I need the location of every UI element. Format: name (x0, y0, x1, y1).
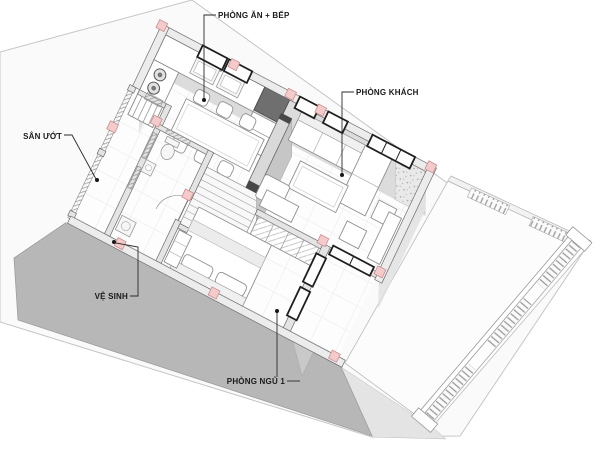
label-living-room: PHÒNG KHÁCH (356, 88, 419, 97)
label-wet-yard: SÂN ƯỚT (23, 132, 62, 141)
floor-plan-rendering: PHÒNG ĂN + BẾP PHÒNG KHÁCH SÂN ƯỚT VỆ SI… (0, 0, 600, 450)
label-toilet: VỆ SINH (95, 292, 128, 301)
label-dining-kitchen: PHÒNG ĂN + BẾP (218, 10, 290, 20)
label-bedroom-1: PHÒNG NGỦ 1 (227, 377, 286, 386)
floor-plan-svg: PHÒNG ĂN + BẾP PHÒNG KHÁCH SÂN ƯỚT VỆ SI… (0, 0, 600, 450)
